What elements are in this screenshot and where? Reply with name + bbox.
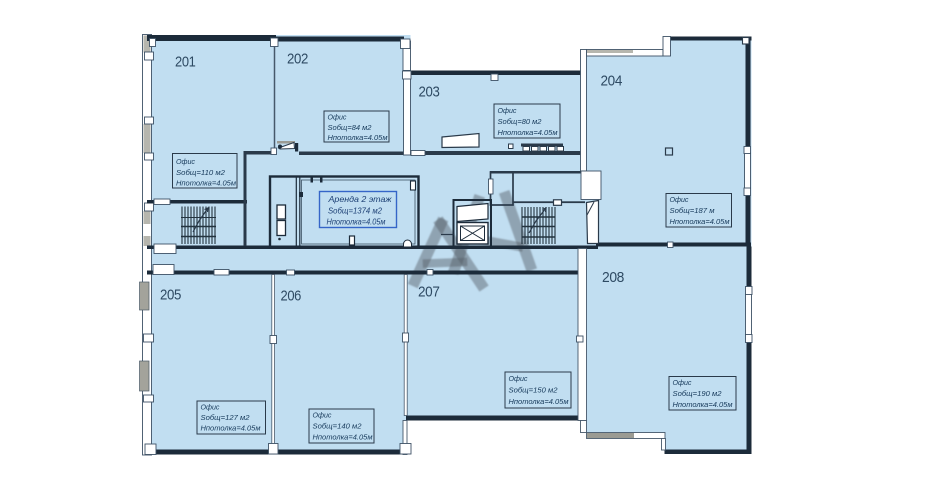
svg-text:Офис: Офис <box>328 113 347 122</box>
svg-text:Sобщ=140 м2: Sобщ=140 м2 <box>313 422 362 431</box>
svg-text:202: 202 <box>287 51 308 68</box>
svg-text:206: 206 <box>281 288 302 305</box>
svg-text:Офис: Офис <box>176 157 195 166</box>
svg-text:Hпотолка=4.05м: Hпотолка=4.05м <box>670 217 730 226</box>
svg-text:Hпотолка=4.05м: Hпотолка=4.05м <box>176 179 236 188</box>
svg-text:207: 207 <box>418 284 440 301</box>
svg-text:Hпотолка=4.05м: Hпотолка=4.05м <box>498 128 558 137</box>
svg-text:Sобщ=190 м2: Sобщ=190 м2 <box>673 389 722 398</box>
svg-text:Sобщ=80 м2: Sобщ=80 м2 <box>498 117 542 126</box>
svg-text:Hпотолка=4.05м: Hпотолка=4.05м <box>328 133 388 142</box>
svg-text:Аренда 2 этаж: Аренда 2 этаж <box>327 195 391 204</box>
svg-text:Sобщ=150 м2: Sобщ=150 м2 <box>509 386 558 395</box>
svg-text:Офис: Офис <box>201 403 220 412</box>
svg-text:Sобщ=1374 м2: Sобщ=1374 м2 <box>328 207 382 216</box>
svg-text:Офис: Офис <box>670 195 689 204</box>
svg-text:Sобщ=110 м2: Sобщ=110 м2 <box>176 168 225 177</box>
svg-text:Офис: Офис <box>313 411 332 420</box>
svg-text:Sобщ=84 м2: Sобщ=84 м2 <box>328 123 372 132</box>
svg-text:Hпотолка=4.05м: Hпотолка=4.05м <box>673 400 733 409</box>
svg-text:203: 203 <box>419 84 440 101</box>
svg-text:Hпотолка=4.05м: Hпотолка=4.05м <box>313 433 373 442</box>
svg-text:Hпотолка=4.05м: Hпотолка=4.05м <box>509 397 569 406</box>
svg-text:204: 204 <box>601 73 623 90</box>
svg-text:Офис: Офис <box>498 106 517 115</box>
svg-text:208: 208 <box>602 269 624 286</box>
svg-text:Sобщ=187 м: Sобщ=187 м <box>670 206 715 215</box>
svg-text:201: 201 <box>175 54 196 71</box>
svg-text:Sобщ=127 м2: Sобщ=127 м2 <box>201 413 250 422</box>
svg-text:Офис: Офис <box>673 378 692 387</box>
svg-text:Hпотолка=4.05м: Hпотолка=4.05м <box>327 218 386 227</box>
svg-text:Офис: Офис <box>509 374 528 383</box>
svg-text:Hпотолка=4.05м: Hпотолка=4.05м <box>201 424 261 433</box>
svg-text:205: 205 <box>160 287 181 304</box>
